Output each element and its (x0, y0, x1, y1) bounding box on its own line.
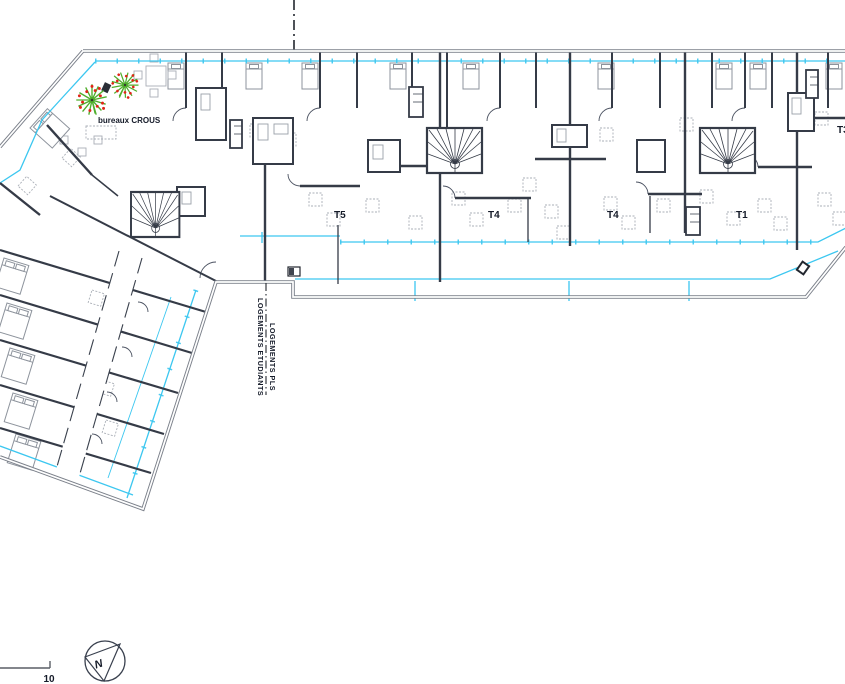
tenure-label-pls: LOGEMENTS PLS (268, 323, 277, 391)
scale-label: 10 (43, 674, 55, 684)
unit-label-t3: T3 (837, 125, 845, 136)
floor-plan-drawing: LOGEMENTS PLS LOGEMENTS ETUDIANTS bureau… (0, 0, 845, 684)
unit-label-t4-right: T4 (607, 210, 619, 221)
unit-label-t4-left: T4 (488, 210, 500, 221)
unit-label-t5: T5 (334, 210, 346, 221)
unit-label-t1: T1 (736, 210, 748, 221)
floor-plan-canvas: LOGEMENTS PLS LOGEMENTS ETUDIANTS bureau… (0, 0, 845, 684)
scale-bar: 10 (0, 661, 55, 684)
north-arrow: N (85, 641, 125, 681)
label-bureaux-crous: bureaux CROUS (98, 116, 161, 125)
tenure-label-etudiants: LOGEMENTS ETUDIANTS (256, 298, 265, 396)
tenure-boundary: LOGEMENTS PLS LOGEMENTS ETUDIANTS (256, 283, 277, 396)
wing-corridor (56, 251, 142, 477)
